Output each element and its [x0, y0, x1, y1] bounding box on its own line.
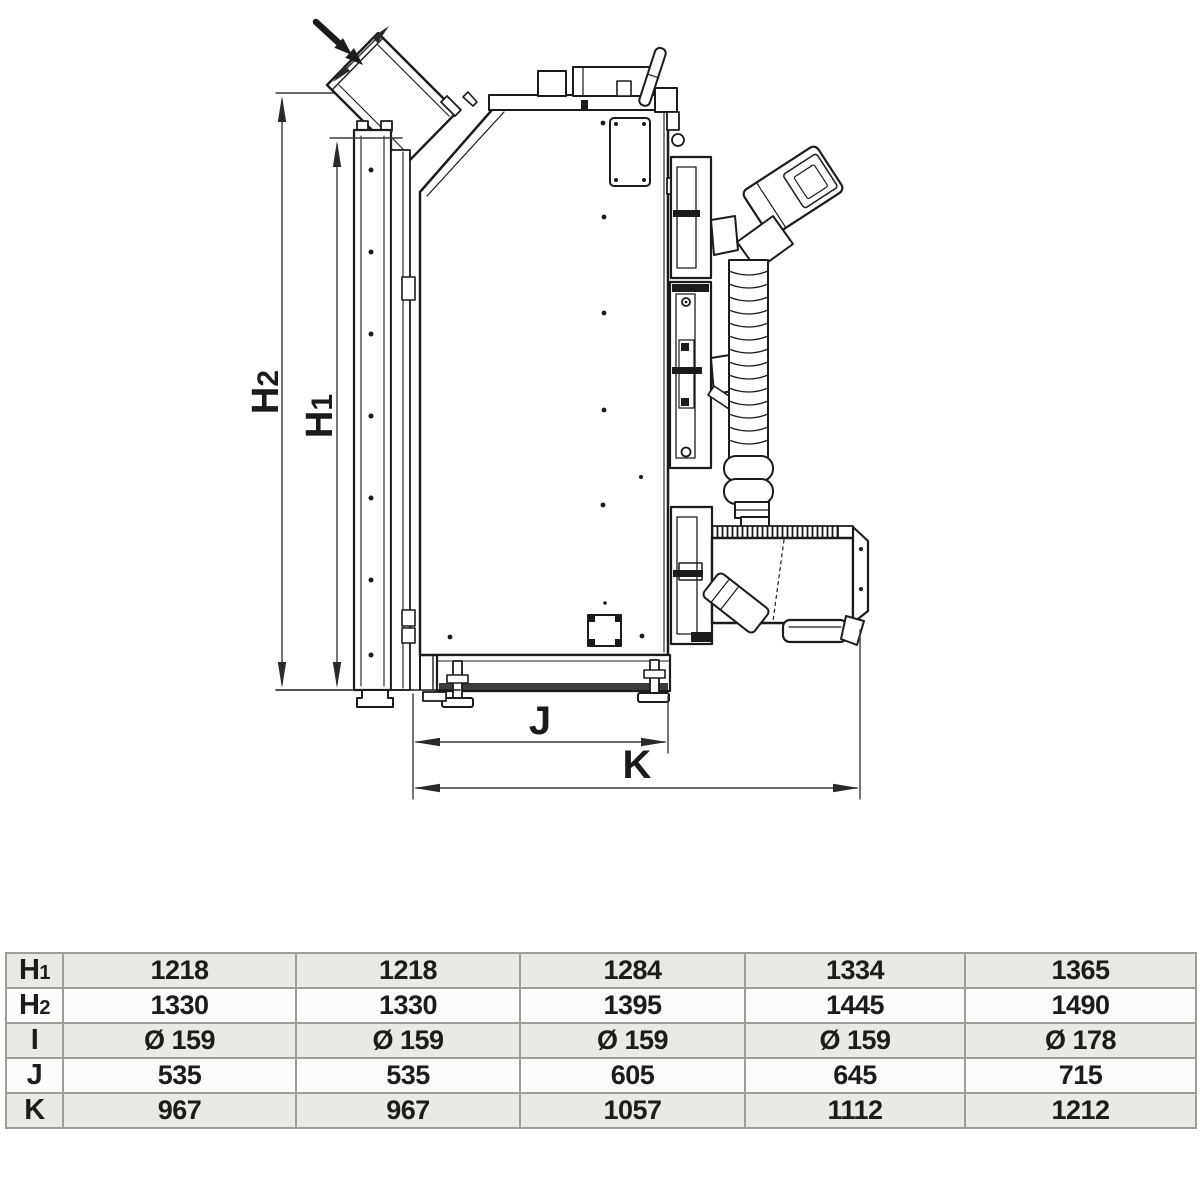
dim-value-cell: 715	[965, 1058, 1196, 1093]
pellet-burner	[702, 526, 868, 645]
dim-value-cell: 967	[63, 1093, 296, 1128]
right-foot	[638, 693, 669, 702]
dim-value-cell: 1330	[63, 988, 296, 1023]
top-box-large	[573, 67, 650, 96]
dim-value-cell: 1284	[520, 953, 745, 988]
dim-value-cell: 535	[296, 1058, 520, 1093]
dim-value-cell: Ø 159	[520, 1023, 745, 1058]
top-box-small	[538, 71, 566, 96]
rear-foot	[357, 690, 393, 707]
dim-value-cell: 1445	[745, 988, 965, 1023]
dim-value-cell: 1212	[965, 1093, 1196, 1128]
dim-label-cell: I	[6, 1023, 63, 1058]
dim-value-cell: 967	[296, 1093, 520, 1128]
dim-label-h2: H2	[245, 370, 287, 414]
dim-label-k: K	[623, 743, 652, 787]
table-row-h2: H2 1330 1330 1395 1445 1490	[6, 988, 1196, 1023]
table-row-i: I Ø 159 Ø 159 Ø 159 Ø 159 Ø 178	[6, 1023, 1196, 1058]
dim-value-cell: 1112	[745, 1093, 965, 1128]
pellet-feeder-motor	[741, 144, 844, 237]
dim-label-cell: H2	[6, 988, 63, 1023]
dim-value-cell: Ø 159	[745, 1023, 965, 1058]
flexible-feed-hose	[724, 260, 773, 536]
dim-value-cell: 1057	[520, 1093, 745, 1128]
dim-label-cell: H1	[6, 953, 63, 988]
dim-value-cell: 1334	[745, 953, 965, 988]
dimensions-table-wrap: H1 1218 1218 1284 1334 1365 H2 1330 1330…	[5, 952, 1195, 1129]
dim-value-cell: 645	[745, 1058, 965, 1093]
dim-value-cell: Ø 159	[63, 1023, 296, 1058]
dim-label-h1: H1	[299, 394, 341, 438]
table-row-j: J 535 535 605 645 715	[6, 1058, 1196, 1093]
dimensions-table: H1 1218 1218 1284 1334 1365 H2 1330 1330…	[5, 952, 1197, 1129]
boiler-technical-drawing: H2 H1 J K	[0, 0, 1200, 955]
ash-drawer	[783, 620, 847, 642]
dim-value-cell: 1218	[296, 953, 520, 988]
dim-value-cell: 1395	[520, 988, 745, 1023]
table-row-k: K 967 967 1057 1112 1212	[6, 1093, 1196, 1128]
boiler-body	[402, 47, 685, 689]
dim-value-cell: 1218	[63, 953, 296, 988]
rating-plate	[610, 118, 650, 186]
dim-label-cell: J	[6, 1058, 63, 1093]
dim-value-cell: 535	[63, 1058, 296, 1093]
dim-value-cell: Ø 178	[965, 1023, 1196, 1058]
dim-value-cell: 605	[520, 1058, 745, 1093]
page: { "drawing": { "dimension_labels": { "h1…	[0, 0, 1200, 1200]
table-row-h1: H1 1218 1218 1284 1334 1365	[6, 953, 1196, 988]
hose-bracket-top	[711, 216, 738, 255]
dim-value-cell: 1365	[965, 953, 1196, 988]
dim-label-j: J	[529, 699, 551, 743]
dim-value-cell: 1490	[965, 988, 1196, 1023]
dim-label-cell: K	[6, 1093, 63, 1128]
dim-value-cell: 1330	[296, 988, 520, 1023]
flue-direction-arrow-icon	[316, 22, 363, 65]
handle-base	[655, 88, 677, 112]
dim-value-cell: Ø 159	[296, 1023, 520, 1058]
